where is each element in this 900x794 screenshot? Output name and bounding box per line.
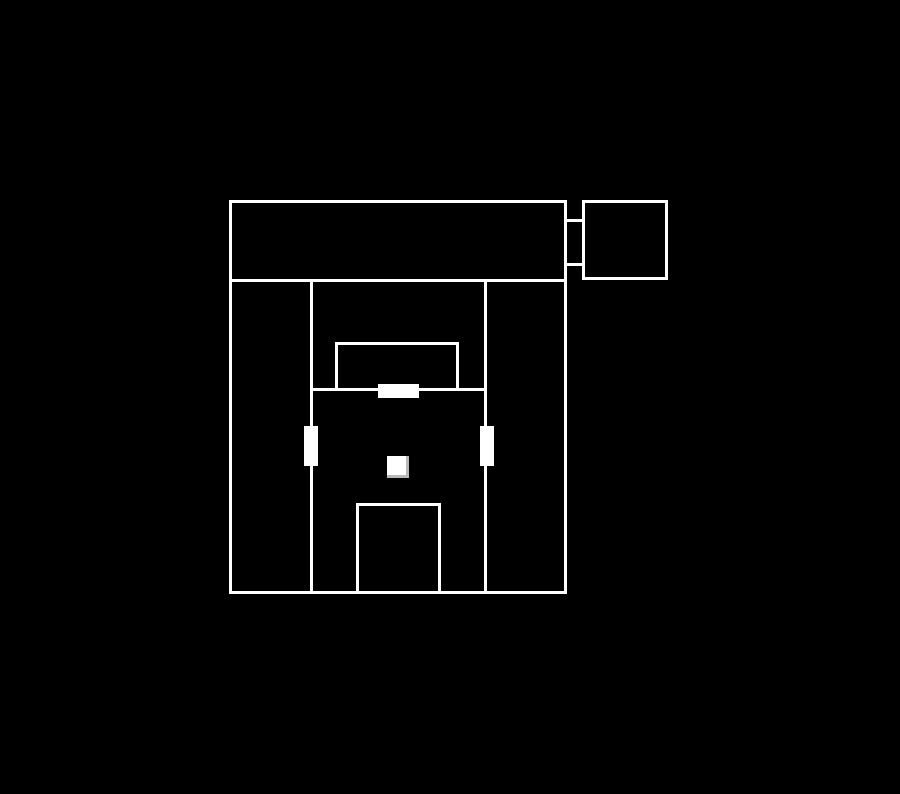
center-square-object bbox=[387, 456, 409, 478]
corridor-wall-bottom bbox=[564, 263, 584, 266]
inner-room-lower-outline bbox=[356, 503, 441, 594]
door-marker-top bbox=[378, 384, 419, 398]
corridor-wall-top bbox=[564, 219, 584, 222]
door-marker-left bbox=[304, 426, 318, 466]
door-marker-right bbox=[480, 426, 494, 466]
floor-plan-canvas bbox=[0, 0, 900, 794]
top-hall-room-outline bbox=[229, 200, 567, 282]
annex-room-outline bbox=[582, 200, 668, 280]
